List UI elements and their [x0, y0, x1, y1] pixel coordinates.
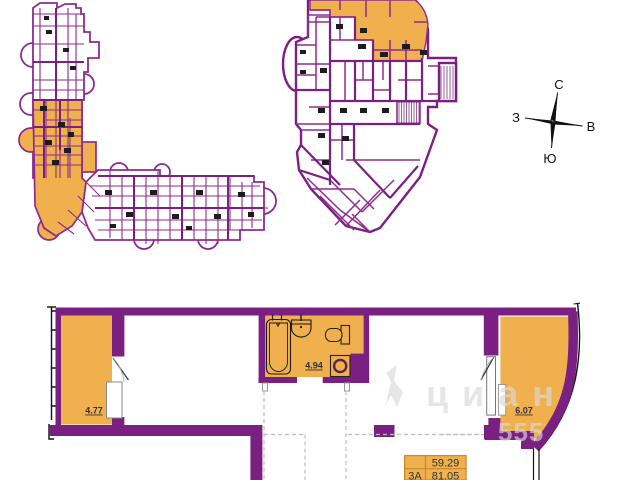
svg-text:4.94: 4.94 [305, 361, 323, 371]
svg-text:3А: 3А [408, 471, 422, 480]
svg-text:циан: циан [426, 373, 568, 414]
svg-text:555: 555 [498, 417, 544, 447]
svg-text:4.77: 4.77 [85, 406, 103, 416]
svg-text:В: В [587, 119, 596, 134]
svg-text:59.29: 59.29 [432, 458, 460, 470]
svg-text:81.05: 81.05 [432, 471, 460, 480]
svg-text:З: З [512, 110, 520, 125]
svg-text:Ю: Ю [543, 151, 556, 166]
svg-text:С: С [554, 77, 563, 92]
